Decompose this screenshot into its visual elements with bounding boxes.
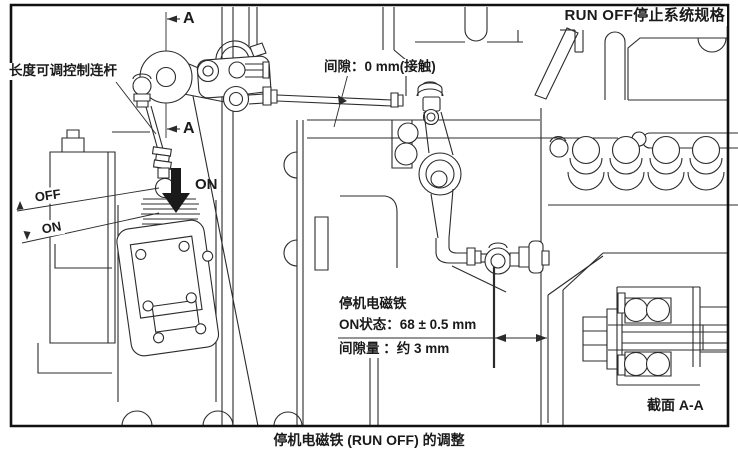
linkage-label: 长度可调控制连杆	[7, 63, 119, 80]
left-arrow-icon	[167, 126, 177, 133]
control-rod	[248, 87, 403, 107]
solenoid-on-state-label: ON状态：68 ± 0.5 mm	[337, 317, 478, 334]
solenoid-clearance-label: 间隙量 ：约 3 mm	[337, 341, 451, 358]
left-arrow-icon	[167, 16, 177, 23]
on-arrow-label: ON	[193, 176, 220, 195]
left-arrow-icon	[495, 334, 506, 342]
section-marker-a-bottom: A	[181, 119, 197, 139]
section-aa-label: 截面 A-A	[645, 397, 706, 415]
solenoid-body	[115, 218, 225, 358]
figure-caption: 停机电磁铁 (RUN OFF) 的调整	[0, 430, 738, 450]
up-arrow-icon	[17, 201, 24, 210]
down-arrow-icon	[24, 231, 31, 240]
stop-solenoid	[115, 199, 225, 358]
section-aa-view	[583, 287, 729, 385]
figure-stage: RUN OFF停止系统规格 A A 长度可调控制连杆 间隙：0 mm(接触) O…	[0, 0, 738, 453]
bellcrank-assembly	[140, 41, 271, 112]
section-marker-a-top: A	[181, 9, 197, 29]
tappet-domes	[568, 137, 724, 191]
solenoid-name-label: 停机电磁铁	[337, 296, 409, 313]
figure-title: RUN OFF停止系统规格	[562, 7, 727, 26]
gap-label: 间隙：0 mm(接触)	[322, 59, 438, 76]
